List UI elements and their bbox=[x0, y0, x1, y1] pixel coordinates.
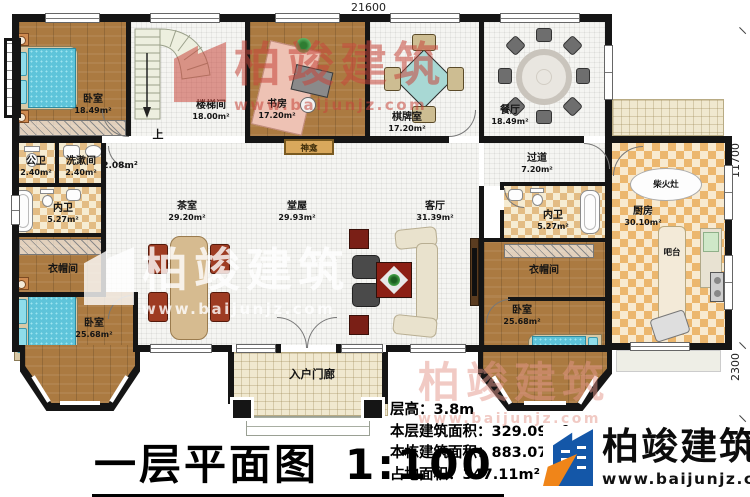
room-label-inner-bath-left: 内卫 5.27m² bbox=[47, 203, 79, 224]
toilet-tank bbox=[530, 188, 544, 193]
wall bbox=[12, 136, 102, 143]
room-label-kitchen: 厨房 30.10m² bbox=[624, 206, 661, 227]
terrace bbox=[612, 99, 724, 136]
chair bbox=[148, 244, 168, 274]
wall bbox=[12, 233, 106, 237]
room-name: 卧室 bbox=[74, 94, 111, 106]
wall bbox=[484, 136, 584, 143]
room-name: 餐厅 bbox=[491, 105, 528, 117]
plant-icon bbox=[388, 274, 400, 286]
wall bbox=[55, 143, 59, 187]
window bbox=[500, 13, 580, 23]
chair bbox=[447, 67, 464, 91]
room-label-inner-bath-right: 内卫 5.27m² bbox=[537, 210, 569, 231]
wall bbox=[500, 210, 504, 238]
room-area: 2.08m² bbox=[102, 161, 138, 172]
blanket bbox=[28, 48, 76, 108]
chair bbox=[412, 34, 436, 51]
wall bbox=[365, 22, 370, 143]
room-label-stairwell: 楼梯间 18.00m² bbox=[192, 100, 229, 121]
room-area: 29.20m² bbox=[168, 213, 205, 222]
chair bbox=[210, 292, 230, 322]
chair bbox=[576, 68, 590, 84]
sofa-section bbox=[416, 243, 438, 323]
room-label-wash-room: 洗漱间 2.40m² bbox=[65, 156, 97, 177]
plant-icon bbox=[296, 38, 311, 53]
room-name: 客厅 bbox=[416, 201, 453, 213]
dimension-tick bbox=[739, 27, 746, 34]
chair bbox=[210, 244, 230, 274]
room-label-bedroom-tl: 卧室 18.49m² bbox=[74, 94, 111, 115]
bar-counter-label: 吧台 bbox=[663, 246, 680, 258]
room-label-bedroom-bl: 卧室 25.68m² bbox=[75, 318, 112, 339]
room-area: 30.10m² bbox=[624, 218, 661, 227]
brand-url: www.baijunjz.com bbox=[602, 470, 750, 488]
room-label-cloakroom-right: 衣帽间 bbox=[529, 265, 559, 277]
room-label-cloakroom-left: 衣帽间 bbox=[48, 264, 78, 276]
room-area: 25.68m² bbox=[503, 317, 540, 326]
room-area: 18.49m² bbox=[491, 117, 528, 126]
dimension-tick bbox=[739, 342, 746, 349]
room-name: 洗漱间 bbox=[65, 156, 97, 168]
shrine-label: 神龛 bbox=[300, 142, 317, 154]
window bbox=[410, 344, 466, 353]
room-name: 茶室 bbox=[168, 201, 205, 213]
window bbox=[45, 13, 100, 23]
room-area: 5.27m² bbox=[47, 215, 79, 224]
room-label-bedroom-br: 卧室 25.68m² bbox=[503, 305, 540, 326]
room-area: 18.00m² bbox=[192, 112, 229, 121]
room-name: 过道 bbox=[521, 153, 553, 165]
wall bbox=[133, 292, 138, 352]
bay-window-bedroom-bl bbox=[20, 345, 140, 411]
wall bbox=[484, 238, 612, 242]
room-label-main-hall: 堂屋 29.93m² bbox=[278, 201, 315, 222]
room-label-passage: 过道 7.20m² bbox=[521, 153, 553, 174]
wall bbox=[605, 136, 732, 143]
room-name: 楼梯间 bbox=[192, 100, 229, 112]
room-label-nook: 2.08m² bbox=[102, 161, 138, 172]
room-name: 衣帽间 bbox=[529, 265, 559, 277]
room-name: 入户门廊 bbox=[289, 368, 335, 382]
info-label: 本栋建筑面积： bbox=[390, 445, 492, 461]
room-name: 棋牌室 bbox=[388, 112, 425, 124]
side-table bbox=[349, 315, 369, 335]
window bbox=[150, 344, 212, 353]
burner bbox=[714, 290, 721, 297]
wall bbox=[370, 136, 449, 143]
room-area: 25.68m² bbox=[75, 330, 112, 339]
info-value: 3.8m bbox=[434, 402, 475, 418]
bathtub bbox=[580, 190, 600, 234]
dimension-tick bbox=[739, 415, 746, 422]
room-label-living-room: 客厅 31.39m² bbox=[416, 201, 453, 222]
toilet bbox=[532, 194, 543, 206]
room-name: 书房 bbox=[258, 99, 295, 111]
room-label-study: 书房 17.20m² bbox=[258, 99, 295, 120]
dimension-right-lower: 2300 bbox=[729, 350, 742, 384]
side-table bbox=[349, 229, 369, 249]
window bbox=[390, 13, 460, 23]
window bbox=[630, 342, 690, 351]
bay-window-glass bbox=[60, 401, 100, 405]
info-label: 本层建筑面积： bbox=[390, 424, 492, 440]
room-name: 公卫 bbox=[20, 156, 52, 168]
bay-floor bbox=[483, 349, 607, 403]
porch-column bbox=[361, 397, 385, 421]
dining-table-center bbox=[536, 69, 552, 85]
room-name: 厨房 bbox=[624, 206, 661, 218]
room-area: 5.27m² bbox=[537, 222, 569, 231]
tv-icon bbox=[472, 248, 477, 296]
porch-column bbox=[230, 397, 254, 421]
chair bbox=[384, 67, 401, 91]
room-area: 17.20m² bbox=[388, 124, 425, 133]
window bbox=[236, 344, 276, 353]
wall bbox=[504, 182, 612, 186]
room-name: 堂屋 bbox=[278, 201, 315, 213]
brand-logo: 柏竣建筑 www.baijunjz.com bbox=[543, 426, 750, 490]
desk-chair bbox=[300, 97, 316, 113]
room-area: 2.40m² bbox=[20, 168, 52, 177]
room-name: 卧室 bbox=[75, 318, 112, 330]
room-name: 衣帽间 bbox=[48, 264, 78, 276]
counter-mat bbox=[703, 232, 719, 252]
brand-logo-icon bbox=[547, 428, 593, 486]
stair-up-label: 上 bbox=[153, 126, 164, 142]
room-name: 内卫 bbox=[47, 203, 79, 215]
floor-plan-canvas: 21600 11700 2300 bbox=[0, 0, 750, 495]
brand-name: 柏竣建筑 bbox=[602, 428, 750, 467]
brand-text: 柏竣建筑 www.baijunjz.com bbox=[602, 428, 750, 488]
info-line: 层高：3.8m bbox=[390, 400, 569, 422]
info-label: 层高： bbox=[390, 402, 434, 418]
info-label: 占地面积： bbox=[390, 467, 463, 483]
chair bbox=[536, 28, 552, 42]
window bbox=[724, 255, 733, 310]
chair bbox=[498, 68, 512, 84]
cooktop bbox=[710, 272, 724, 302]
window bbox=[11, 195, 20, 225]
room-label-dining-room: 餐厅 18.49m² bbox=[491, 105, 528, 126]
wall bbox=[479, 22, 484, 143]
window bbox=[275, 13, 340, 23]
coffee-table bbox=[376, 262, 412, 298]
room-label-public-bath: 公卫 2.40m² bbox=[20, 156, 52, 177]
wall bbox=[245, 22, 250, 143]
chair bbox=[148, 292, 168, 322]
wall bbox=[12, 292, 106, 297]
room-area: 2.40m² bbox=[65, 168, 97, 177]
room-name: 卧室 bbox=[503, 305, 540, 317]
window bbox=[604, 45, 613, 100]
window bbox=[150, 13, 220, 23]
toilet-tank bbox=[40, 189, 54, 194]
window bbox=[724, 165, 733, 220]
chair bbox=[536, 110, 552, 124]
room-name: 内卫 bbox=[537, 210, 569, 222]
closet-hatch-cloakroom-left bbox=[19, 239, 103, 255]
wood-stove-label: 柴火灶 bbox=[653, 178, 679, 190]
room-area: 7.20m² bbox=[521, 165, 553, 174]
room-label-porch: 入户门廊 bbox=[289, 368, 335, 382]
room-area: 17.20m² bbox=[258, 111, 295, 120]
room-label-tea-room: 茶室 29.20m² bbox=[168, 201, 205, 222]
rear-step bbox=[616, 350, 721, 372]
closet-hatch-cloakroom-right bbox=[504, 244, 594, 258]
title-text: 一层平面图 bbox=[94, 431, 319, 492]
wall bbox=[508, 297, 612, 301]
wall bbox=[12, 183, 106, 187]
wall bbox=[605, 143, 612, 350]
bathtub-inner bbox=[584, 194, 596, 230]
dining-table bbox=[516, 49, 572, 105]
room-area: 29.93m² bbox=[278, 213, 315, 222]
tea-table bbox=[170, 236, 208, 340]
window bbox=[341, 344, 383, 353]
sink bbox=[66, 189, 81, 201]
wall bbox=[12, 345, 24, 352]
room-area: 31.39m² bbox=[416, 213, 453, 222]
toilet-tank bbox=[24, 146, 40, 152]
info-value: 347.11m² bbox=[463, 467, 540, 483]
room-area: 18.49m² bbox=[74, 106, 111, 115]
burner bbox=[714, 277, 721, 284]
dimension-top: 21600 bbox=[348, 1, 389, 14]
wall bbox=[479, 186, 484, 346]
room-label-chess-room: 棋牌室 17.20m² bbox=[388, 112, 425, 133]
